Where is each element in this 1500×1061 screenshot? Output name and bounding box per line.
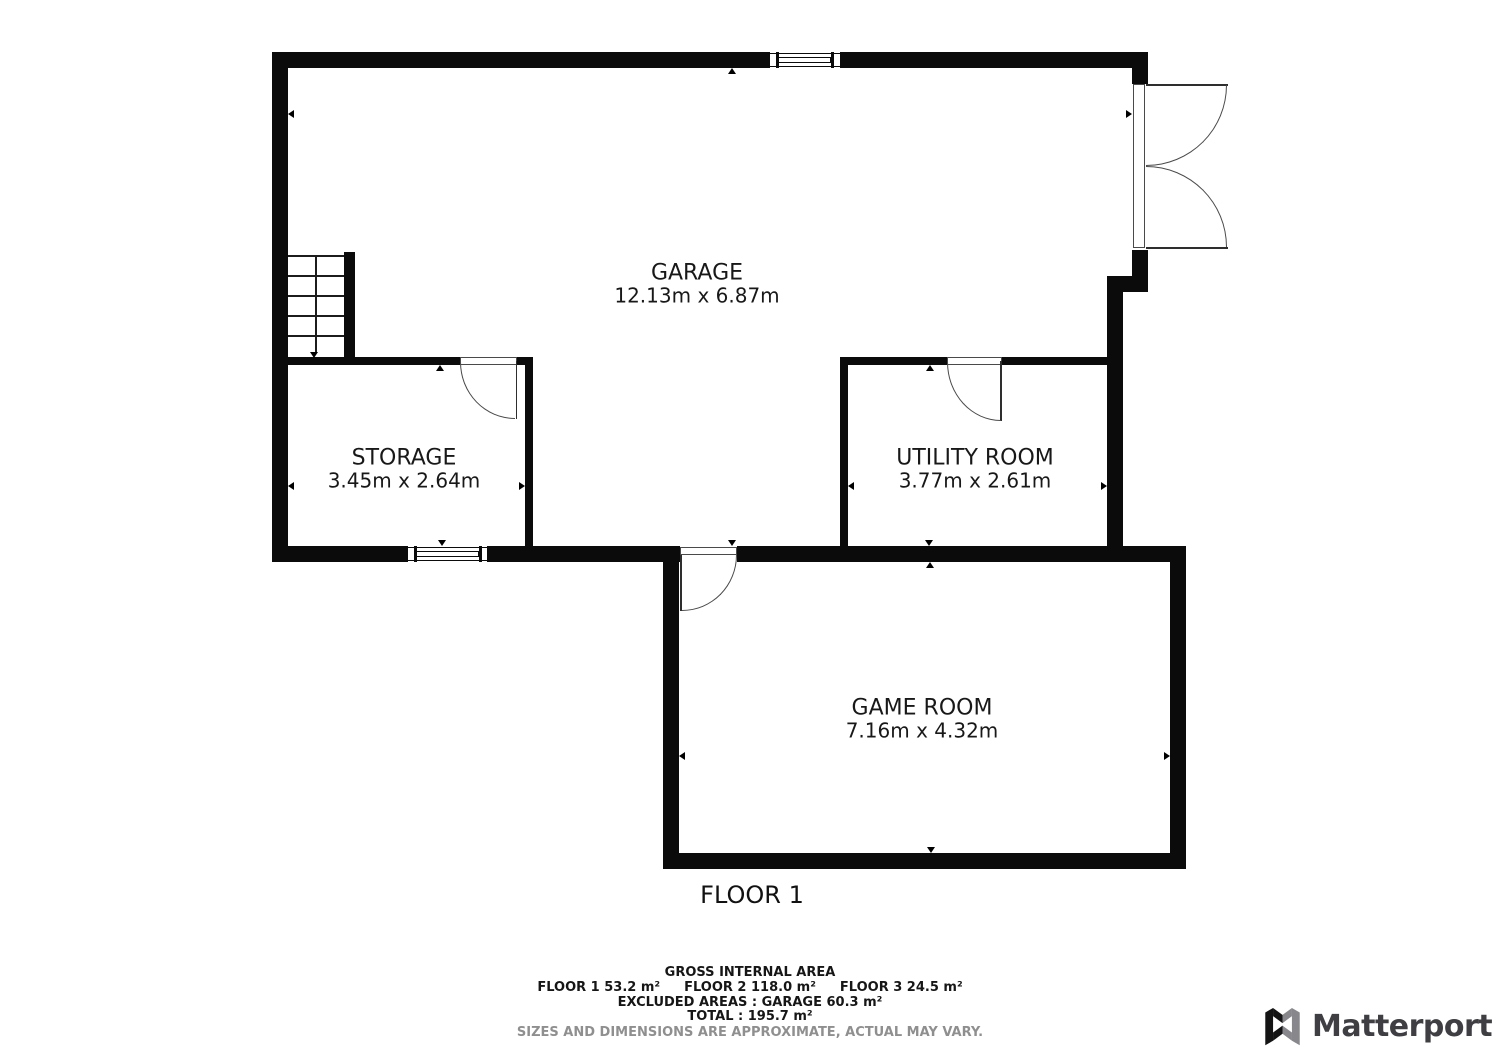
garage-door-jamb — [1133, 84, 1145, 248]
wall-storage-right — [525, 357, 533, 546]
dimension-arrow-garage-right — [1126, 110, 1132, 118]
wall-bottom-left-of-window — [272, 546, 408, 562]
wall-utility-top-left — [840, 357, 947, 365]
wall-utility-left — [840, 357, 848, 546]
window-end-bar — [479, 546, 482, 562]
window-pane — [778, 57, 831, 63]
matterport-logo-text: Matterport — [1312, 1009, 1492, 1044]
wall-gameroom-bottom — [663, 853, 1186, 869]
wall-right-above-garage-door — [1132, 52, 1148, 84]
floor-title: FLOOR 1 — [700, 881, 804, 909]
dimension-arrow-storage-bottom — [438, 540, 446, 546]
dimension-arrow-utility-bottom — [925, 540, 933, 546]
room-name: UTILITY ROOM — [896, 447, 1054, 470]
room-dimensions: 12.13m x 6.87m — [614, 285, 779, 307]
matterport-logo: Matterport — [1262, 1006, 1492, 1046]
excluded-areas-line: EXCLUDED AREAS : GARAGE 60.3 m² — [300, 996, 1200, 1011]
dimension-arrow-storage-right — [519, 482, 525, 490]
disclaimer-text: SIZES AND DIMENSIONS ARE APPROXIMATE, AC… — [300, 1026, 1200, 1041]
dimension-arrow-storage-top — [436, 365, 444, 371]
dimension-arrow-gameroom-left — [679, 752, 685, 760]
floor-2-area: FLOOR 2 118.0 m² — [684, 980, 816, 995]
room-dimensions: 3.45m x 2.64m — [328, 470, 481, 492]
room-name: GARAGE — [614, 262, 779, 285]
dimension-arrow-gameroom-bottom — [927, 847, 935, 853]
room-label-gameroom: GAME ROOM 7.16m x 4.32m — [846, 697, 999, 742]
floor-1-area: FLOOR 1 53.2 m² — [537, 980, 660, 995]
garage-door-leaf-bottom — [1146, 247, 1228, 249]
garage-door-swing-arc-bottom — [1146, 166, 1227, 247]
dimension-arrow-garage-bottom — [728, 540, 736, 546]
wall-gameroom-left — [663, 546, 679, 853]
dimension-arrow-garage-left — [288, 110, 294, 118]
storage-door-leaf — [516, 361, 518, 419]
floor-3-area: FLOOR 3 24.5 m² — [840, 980, 963, 995]
wall-stairwell — [344, 252, 355, 365]
stairs-down-arrow-icon — [310, 352, 318, 358]
stair-center-line — [315, 255, 317, 337]
room-name: GAME ROOM — [846, 697, 999, 720]
wall-top-right-segment — [840, 52, 1148, 68]
wall-utility-right-exterior — [1107, 276, 1123, 562]
room-label-utility: UTILITY ROOM 3.77m x 2.61m — [896, 447, 1054, 492]
area-summary-title: GROSS INTERNAL AREA — [300, 966, 1200, 981]
room-dimensions: 7.16m x 4.32m — [846, 720, 999, 742]
wall-bottom-mid-segment — [487, 546, 680, 562]
wall-gameroom-top — [737, 546, 1186, 562]
matterport-m-icon — [1262, 1006, 1303, 1046]
wall-utility-top-right — [1002, 357, 1107, 365]
room-label-garage: GARAGE 12.13m x 6.87m — [614, 262, 779, 307]
dimension-arrow-utility-left — [848, 482, 854, 490]
dimension-arrow-storage-left — [288, 482, 294, 490]
dimension-arrow-gameroom-right — [1164, 752, 1170, 760]
window-pane — [416, 551, 479, 557]
area-summary: GROSS INTERNAL AREA FLOOR 1 53.2 m²FLOOR… — [300, 966, 1200, 1041]
dimension-arrow-garage-top — [728, 68, 736, 74]
room-dimensions: 3.77m x 2.61m — [896, 470, 1054, 492]
utility-door-swing-arc — [947, 362, 1001, 421]
wall-gameroom-right — [1170, 546, 1186, 869]
room-label-storage: STORAGE 3.45m x 2.64m — [328, 447, 481, 492]
stairs-down-arrow-shaft — [315, 337, 317, 352]
total-area-line: TOTAL : 195.7 m² — [300, 1010, 1200, 1025]
gameroom-door-swing-arc — [682, 555, 737, 611]
dimension-arrow-utility-top — [926, 365, 934, 371]
wall-top-left-segment — [272, 52, 770, 68]
garage-door-swing-arc-top — [1146, 85, 1227, 166]
room-name: STORAGE — [328, 447, 481, 470]
floor-areas-line: FLOOR 1 53.2 m²FLOOR 2 118.0 m²FLOOR 3 2… — [300, 981, 1200, 996]
window-end-bar — [831, 52, 834, 68]
gameroom-door-header — [680, 547, 737, 555]
wall-storage-top-left — [288, 357, 460, 365]
dimension-arrow-gameroom-top — [926, 562, 934, 568]
floorplan-page: GARAGE 12.13m x 6.87m STORAGE 3.45m x 2.… — [0, 0, 1500, 1061]
storage-door-swing-arc — [460, 362, 515, 419]
wall-left-exterior — [272, 52, 288, 562]
dimension-arrow-utility-right — [1101, 482, 1107, 490]
